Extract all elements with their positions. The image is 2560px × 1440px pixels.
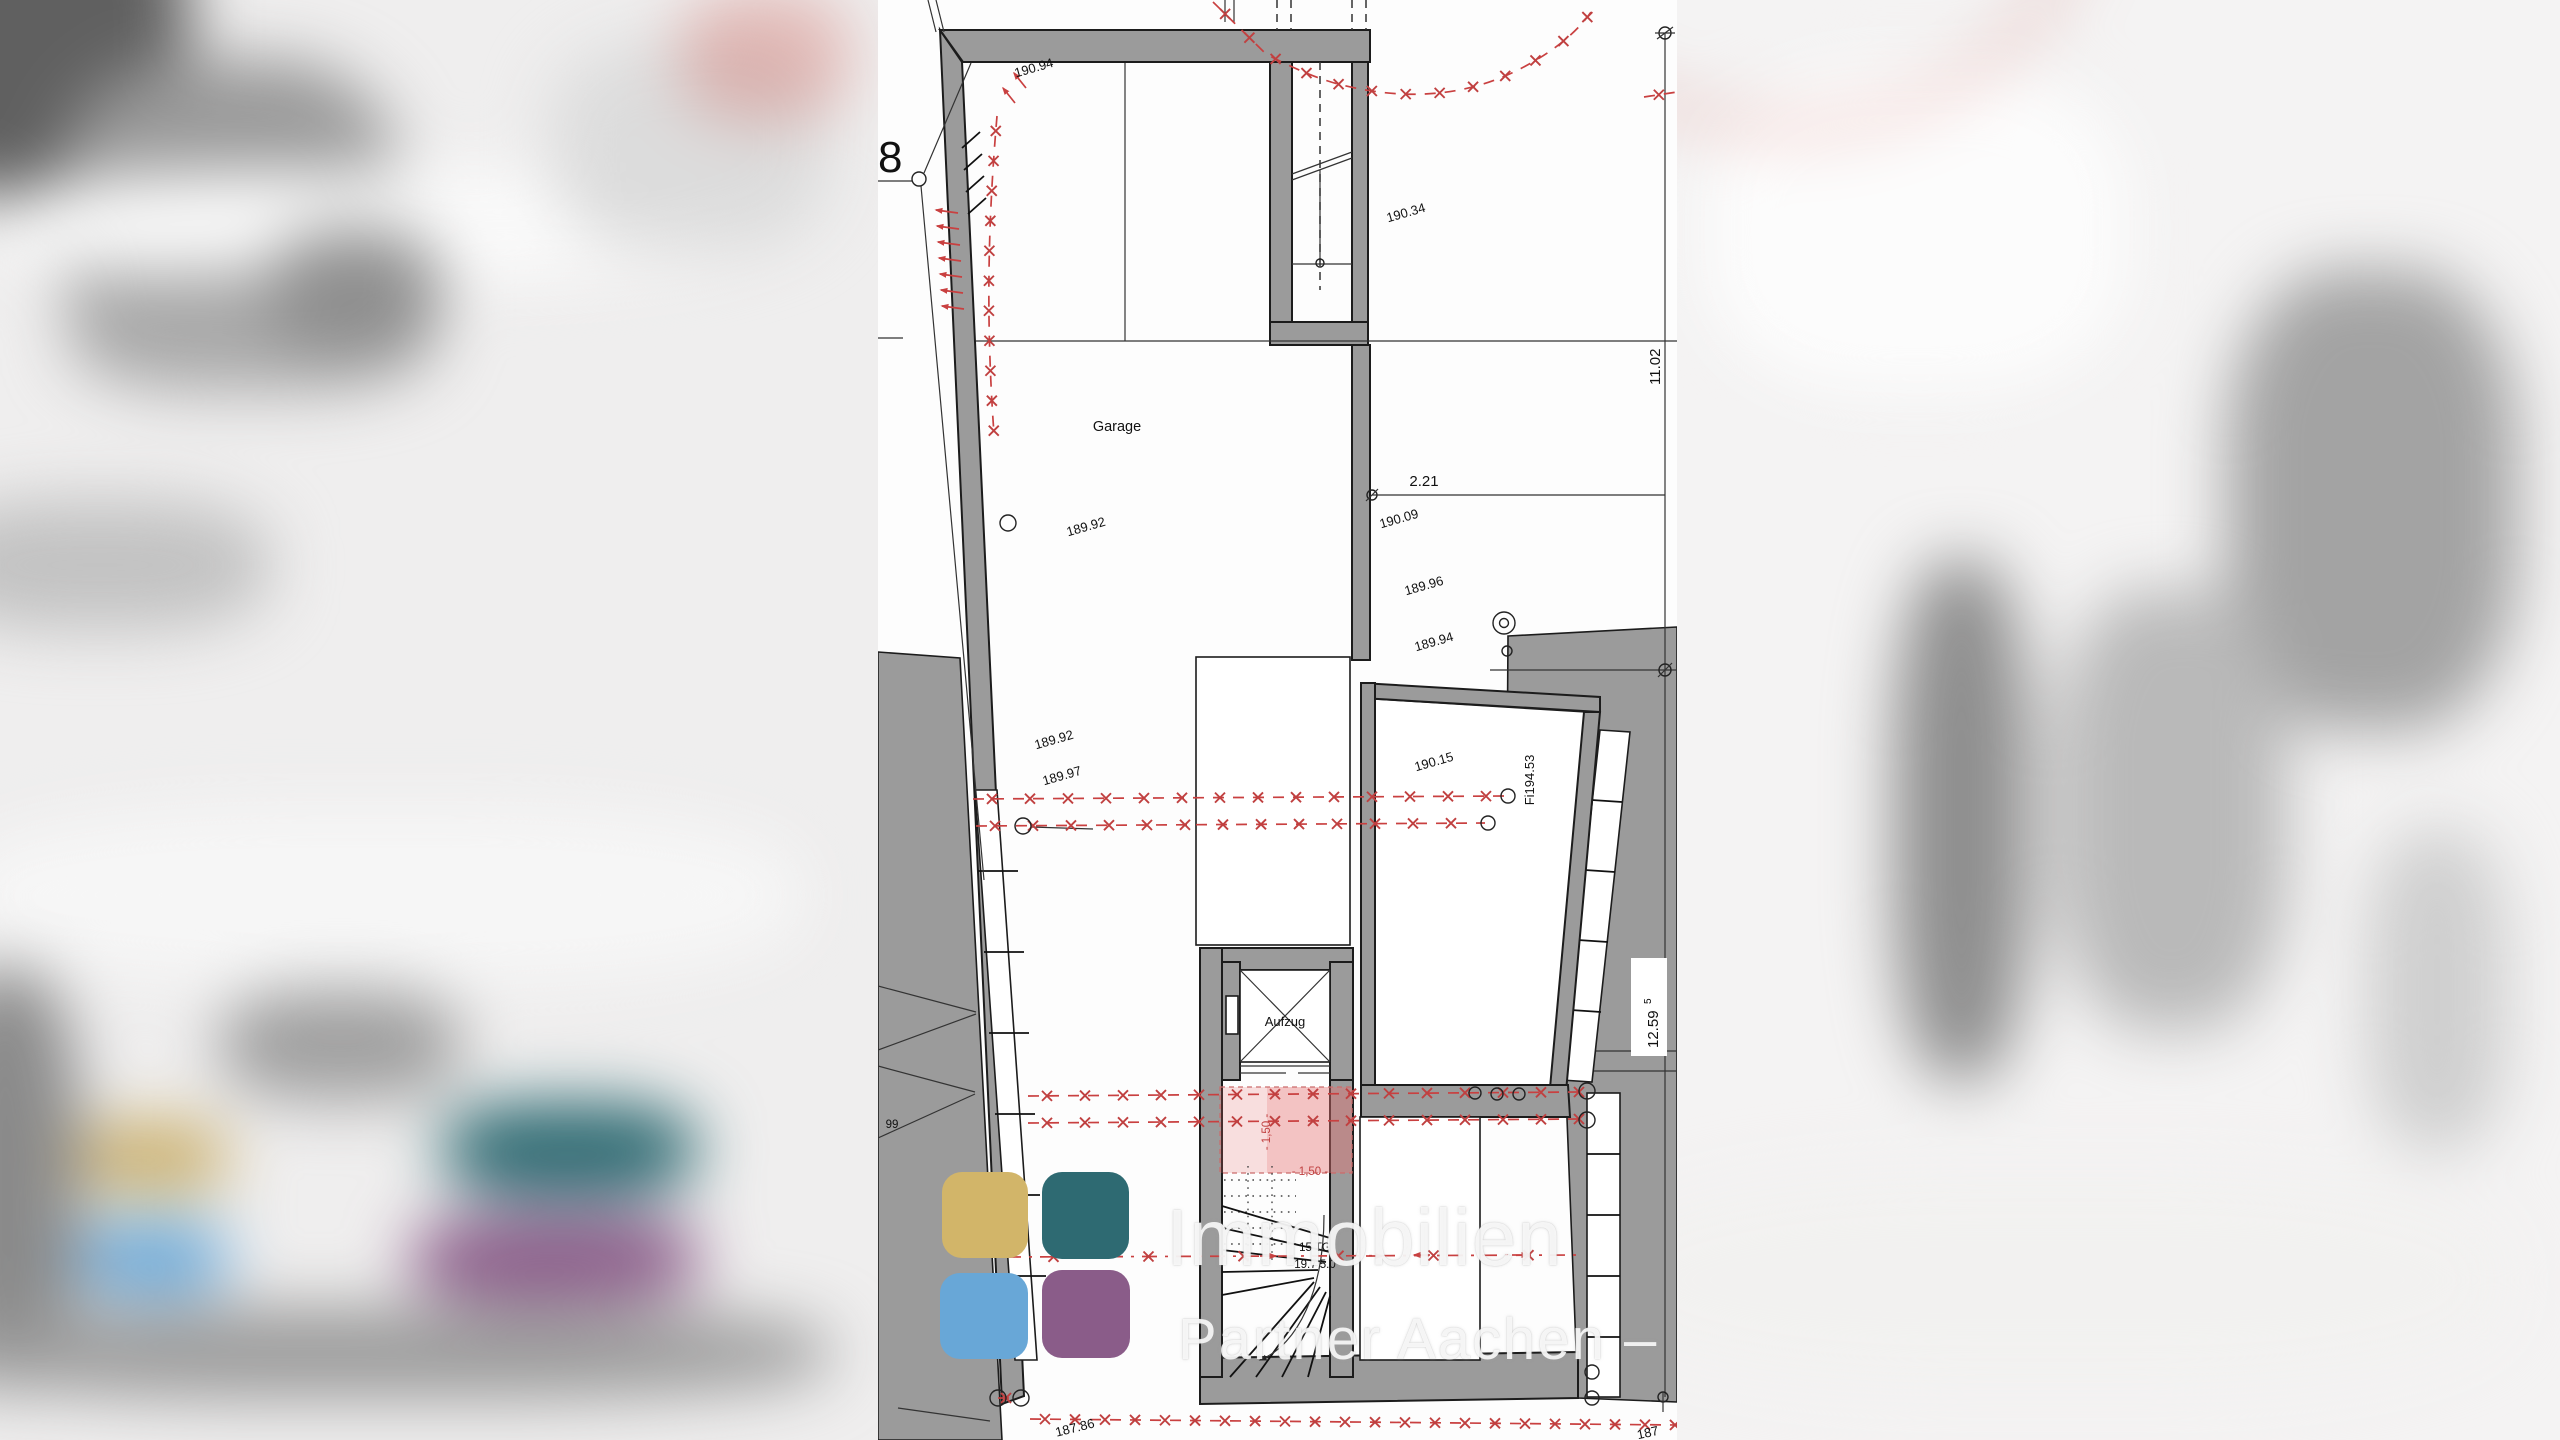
level-left-lower: 189.97 xyxy=(1041,763,1083,788)
logo-square-purple xyxy=(1042,1270,1130,1358)
blurred-right-margin xyxy=(1677,0,2560,1440)
elevator-door xyxy=(1226,996,1238,1034)
level-garage: 189.92 xyxy=(1065,514,1107,539)
stair-note-2: 19.7 5.0 xyxy=(1294,1259,1336,1271)
garage-label: Garage xyxy=(1093,419,1141,435)
north-wall xyxy=(940,30,1370,62)
dim-11-02: 11.02 xyxy=(1647,349,1664,385)
dim-12-59-label: 12.59 5 xyxy=(1631,958,1667,1056)
lightwell-ladder-southeast xyxy=(1587,1093,1620,1397)
blur-decor-right xyxy=(1677,0,2560,1440)
pink-dim-vertical: - 1,50 - xyxy=(1261,1114,1273,1151)
level-bottom-right-partial: 187 xyxy=(1636,1423,1660,1440)
excavation-area xyxy=(1220,1087,1352,1173)
blurred-left-margin xyxy=(0,0,878,1440)
fixpoint-label: Fi194.53 xyxy=(1522,755,1537,806)
house-number: 8 xyxy=(878,133,902,182)
stairs xyxy=(1222,1166,1330,1377)
site-plan: 8 190.94 Garage 189.92 190.34 190.09 189… xyxy=(878,0,1677,1440)
logo-square-teal xyxy=(1042,1172,1129,1259)
room-bottom-right xyxy=(1360,1117,1480,1360)
ramp-zone xyxy=(1196,657,1350,945)
room-right xyxy=(1361,683,1600,1117)
elevator-label: Aufzug xyxy=(1265,1014,1305,1029)
level-upper-court: 190.34 xyxy=(1385,200,1427,225)
svg-text:5: 5 xyxy=(1643,998,1654,1004)
level-court-1: 190.09 xyxy=(1378,506,1420,531)
level-court-2: 189.96 xyxy=(1403,573,1445,598)
level-left-partial: 99 xyxy=(886,1119,899,1131)
garage-east-wall xyxy=(1352,345,1370,660)
level-left-upper: 189.92 xyxy=(1033,727,1075,752)
plan-drawing: 8 190.94 Garage 189.92 190.34 190.09 189… xyxy=(878,0,1677,1440)
level-court-3: 189.94 xyxy=(1413,629,1455,654)
blur-decor-left xyxy=(0,0,878,1440)
logo-square-yellow xyxy=(942,1172,1028,1258)
logo-square-blue xyxy=(940,1273,1028,1359)
pink-dim-horizontal: - 1,50 - xyxy=(1292,1166,1329,1178)
dim-2-21: 2.21 xyxy=(1409,473,1438,490)
floorplan-screenshot: 8 190.94 Garage 189.92 190.34 190.09 189… xyxy=(0,0,2560,1440)
stair-note-1: 15 TG xyxy=(1299,1242,1331,1254)
svg-text:12.59: 12.59 xyxy=(1645,1010,1662,1048)
room-top-right xyxy=(1270,62,1368,345)
